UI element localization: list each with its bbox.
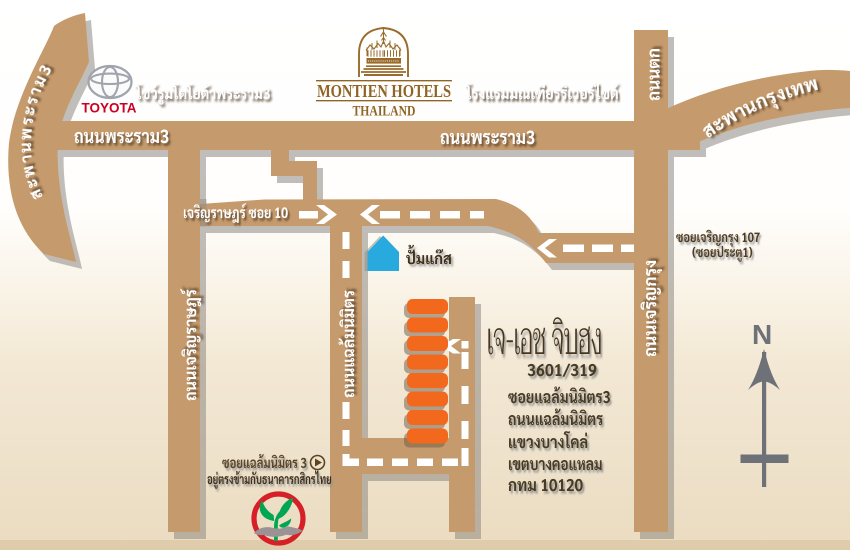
svg-text:THAILAND: THAILAND — [353, 104, 416, 120]
svg-text:TOYOTA: TOYOTA — [82, 101, 137, 116]
svg-text:MONTIEN HOTELS: MONTIEN HOTELS — [317, 81, 451, 101]
svg-text:N: N — [752, 319, 772, 350]
